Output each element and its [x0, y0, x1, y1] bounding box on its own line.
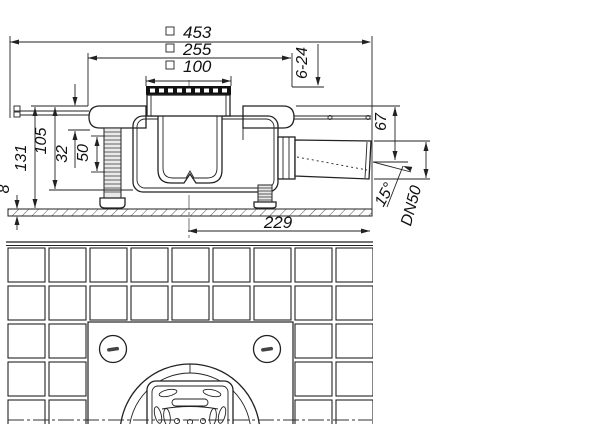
- dim-total-height-label: 131: [13, 145, 30, 172]
- floor-slab: [8, 209, 372, 216]
- design-grate: [147, 381, 233, 424]
- sealing-membrane-left: [14, 106, 89, 117]
- drain-drawing-svg: 453 255 100 6-24 67 15°: [0, 0, 600, 424]
- tile-field-left: [6, 322, 88, 424]
- dim-flange-thickness-label: 32: [54, 145, 71, 163]
- plan-view: [6, 242, 373, 424]
- grate-section: [146, 86, 231, 116]
- dim-outlet-depth-label: 67: [373, 112, 390, 131]
- support-rod-left: [100, 128, 125, 208]
- dim-grate-width-label: 100: [183, 57, 212, 76]
- dim-outlet-angle-label: 15°: [372, 180, 399, 210]
- dim-slab-thickness-label: 8: [0, 184, 13, 193]
- dim-pipe-length-label: 229: [263, 213, 293, 232]
- outlet-pipe: [278, 137, 371, 179]
- drain-body: [133, 112, 278, 192]
- dim-adjustment-range-label: 50: [75, 144, 92, 162]
- tile-field-top: [6, 246, 373, 322]
- tile-field-right: [293, 322, 373, 424]
- siphon-cup: [158, 112, 222, 183]
- technical-drawing-canvas: 453 255 100 6-24 67 15°: [0, 0, 600, 424]
- dim-body-height-label: 105: [33, 128, 50, 155]
- dim-tile-range-label: 6-24: [294, 47, 311, 79]
- sealing-membrane-right: [294, 116, 371, 120]
- dim-pipe-diameter-label: DN50: [398, 184, 425, 228]
